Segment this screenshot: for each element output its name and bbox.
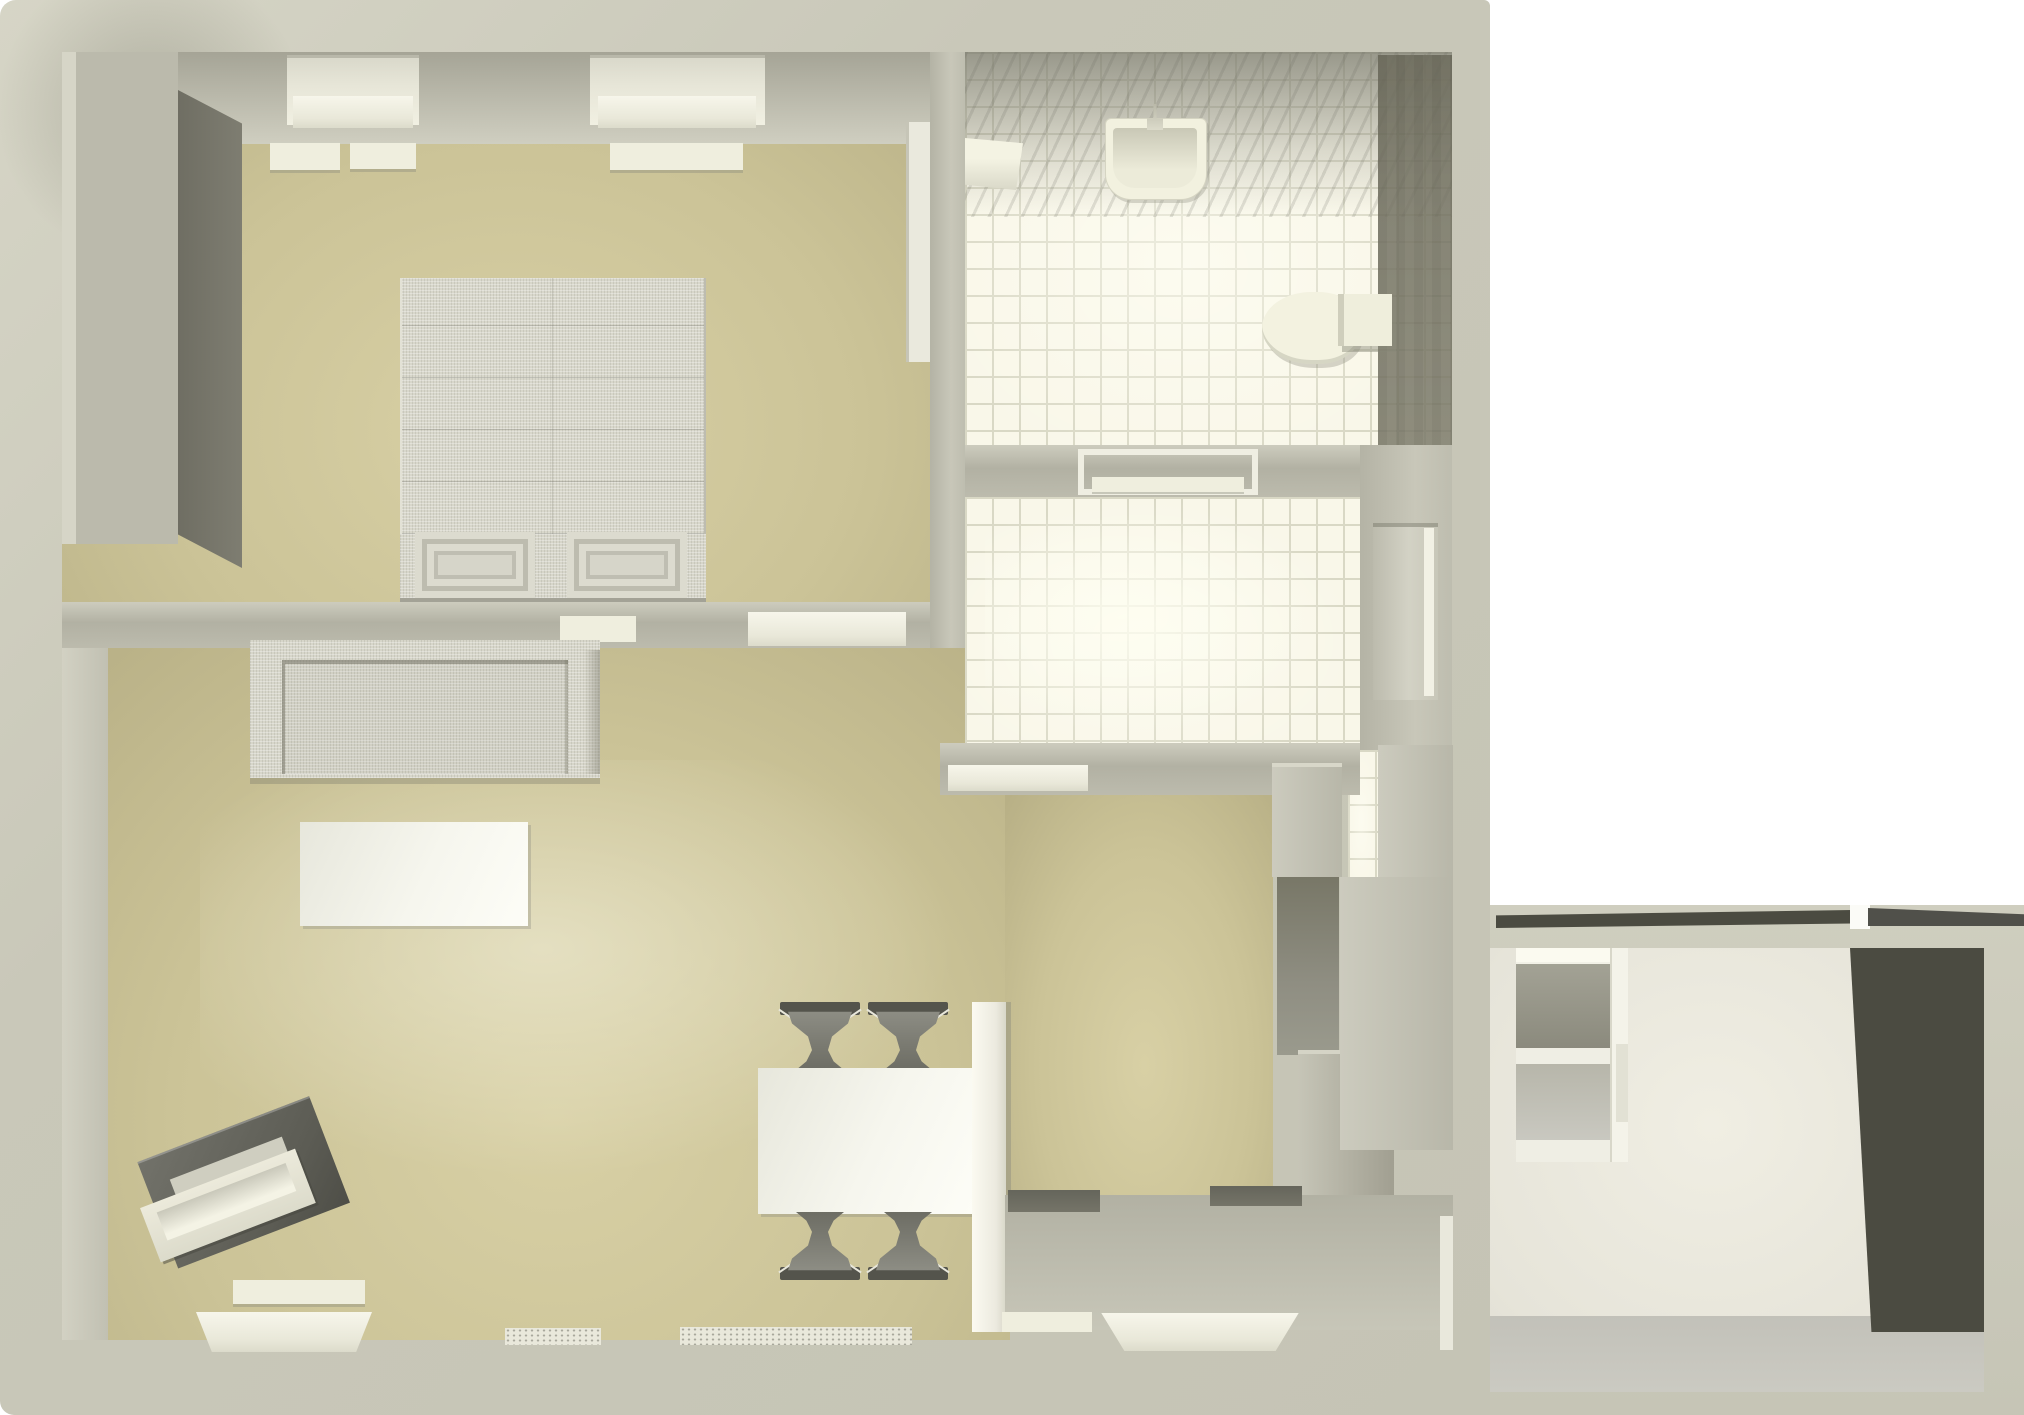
- bathroom-sink-basin: [1113, 128, 1197, 188]
- chair-seat: [780, 1212, 860, 1274]
- living-window-sill: [196, 1312, 372, 1352]
- hallway-tiled-floor: [965, 497, 1360, 757]
- kitchen-dark-counter-left: [1008, 1190, 1100, 1212]
- annex-dark-wall-panel: [1850, 948, 1984, 1332]
- toilet-tank: [1338, 294, 1392, 346]
- sofa-armrest-shadow: [584, 650, 600, 774]
- dining-chair-top-right: [866, 1002, 950, 1070]
- living-radiator-bar: [233, 1280, 365, 1304]
- chair-seat: [868, 1212, 948, 1274]
- floor-plan-scene: [0, 0, 2024, 1415]
- kitchen-window-sill-large: [1095, 1313, 1305, 1351]
- bed-pillow-right: [567, 532, 687, 598]
- bedroom-window-2-sill: [598, 96, 756, 128]
- shelf-door-edge: [1616, 1044, 1628, 1122]
- kitchen-counter-shadow-face: [1277, 877, 1339, 1055]
- wardrobe: [62, 52, 178, 544]
- sofa-seat: [282, 660, 568, 774]
- kitchen-tall-cabinet: [1340, 877, 1453, 1150]
- bedroom-door-panel: [906, 122, 930, 362]
- kitchen-right-wall-trim: [1440, 1216, 1453, 1350]
- kitchen-window-sill-small: [1002, 1312, 1092, 1332]
- annex-roof-gap: [1850, 905, 1870, 929]
- bedroom-ceiling-light-bar: [270, 143, 340, 170]
- wall-bedroom-bathroom: [930, 52, 965, 648]
- kitchen-upper-cabinet: [1378, 745, 1453, 880]
- shelf-cell-upper: [1516, 964, 1610, 1048]
- dining-chair-top-left: [778, 1002, 862, 1070]
- bathroom-shelf: [965, 138, 1023, 190]
- annex-shelf-unit: [1516, 948, 1628, 1162]
- hall-living-threshold: [948, 765, 1088, 791]
- bedroom-living-doorway-threshold: [748, 612, 906, 646]
- living-threshold-1: [505, 1328, 601, 1345]
- dining-chair-bottom-right: [866, 1212, 950, 1280]
- shelf-mid-bar: [1516, 1048, 1610, 1064]
- shelf-cell-lower: [1516, 1064, 1610, 1140]
- kitchen-open-floor: [1005, 790, 1273, 1195]
- bed-pillow-left: [415, 532, 535, 598]
- dining-partition-wall: [972, 1002, 1006, 1332]
- kitchen-dark-counter-right: [1210, 1186, 1302, 1206]
- bedroom-window-1-sill: [293, 96, 413, 128]
- chair-seat: [780, 1008, 860, 1070]
- hall-door-leaf: [1092, 477, 1244, 492]
- bedroom-radiator-bar-1: [350, 143, 416, 169]
- living-left-wall-face: [62, 640, 108, 1340]
- kitchen-counter-column: [1272, 763, 1342, 877]
- bed-blanket: [400, 278, 706, 534]
- bedroom-radiator-bar-2: [610, 143, 743, 170]
- bathroom-right-wall-shadow: [1378, 55, 1452, 445]
- dining-table: [758, 1068, 972, 1214]
- coffee-table: [300, 822, 528, 926]
- chair-seat: [868, 1008, 948, 1070]
- living-threshold-2: [680, 1327, 912, 1345]
- kitchen-bottom-wall-face: [1005, 1195, 1453, 1330]
- living-top-wall-sill: [560, 616, 636, 642]
- wardrobe-side-face: [178, 90, 242, 568]
- hall-niche-door-edge: [1424, 528, 1434, 696]
- dining-chair-bottom-left: [778, 1212, 862, 1280]
